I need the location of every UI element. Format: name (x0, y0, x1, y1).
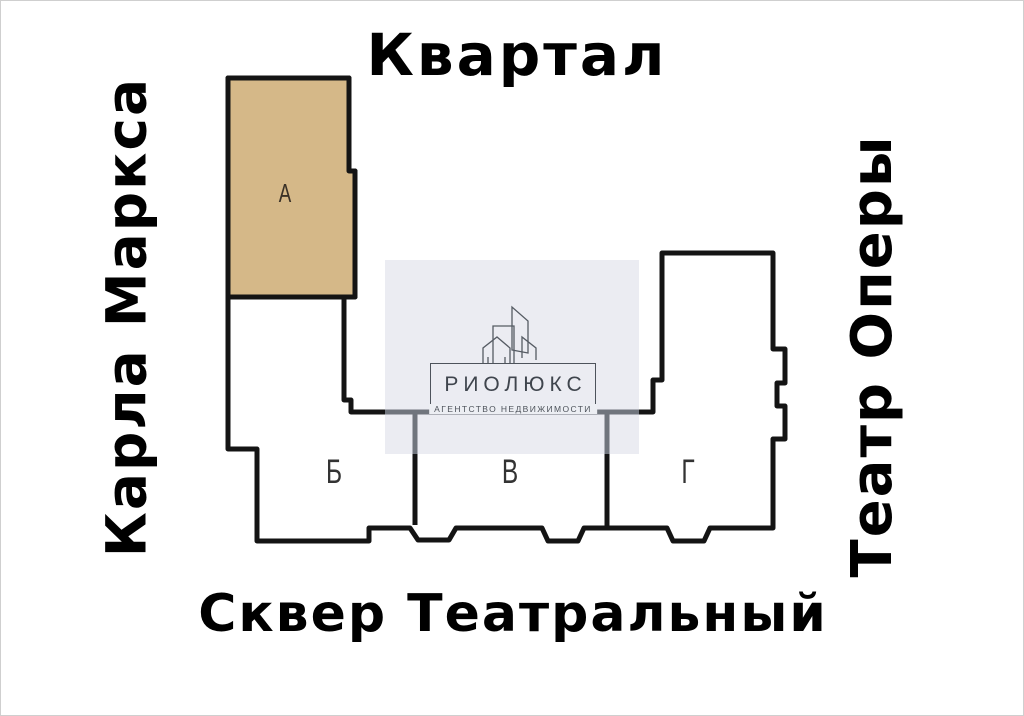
section-a-area[interactable] (228, 78, 355, 297)
logo-building-icon (478, 304, 542, 365)
street-label-left: Карла Маркса (100, 77, 155, 557)
street-label-bottom: Сквер Театральный (198, 588, 828, 640)
section-label-g: Г (681, 455, 694, 489)
section-b-area[interactable] (231, 301, 411, 536)
logo-name: РИОЛЮКС (431, 373, 595, 396)
street-label-right: Театр Оперы (845, 134, 901, 577)
agency-watermark: РИОЛЮКС АГЕНТСТВО НЕДВИЖИМОСТИ (430, 363, 596, 409)
section-label-a: А (279, 180, 291, 206)
logo-tagline: АГЕНТСТВО НЕДВИЖИМОСТИ (429, 404, 597, 414)
section-label-b: Б (326, 455, 342, 489)
street-label-top: Квартал (366, 26, 667, 84)
section-label-v: В (502, 455, 518, 489)
quarter-map: Квартал Карла Маркса Театр Оперы Сквер Т… (0, 0, 1024, 716)
